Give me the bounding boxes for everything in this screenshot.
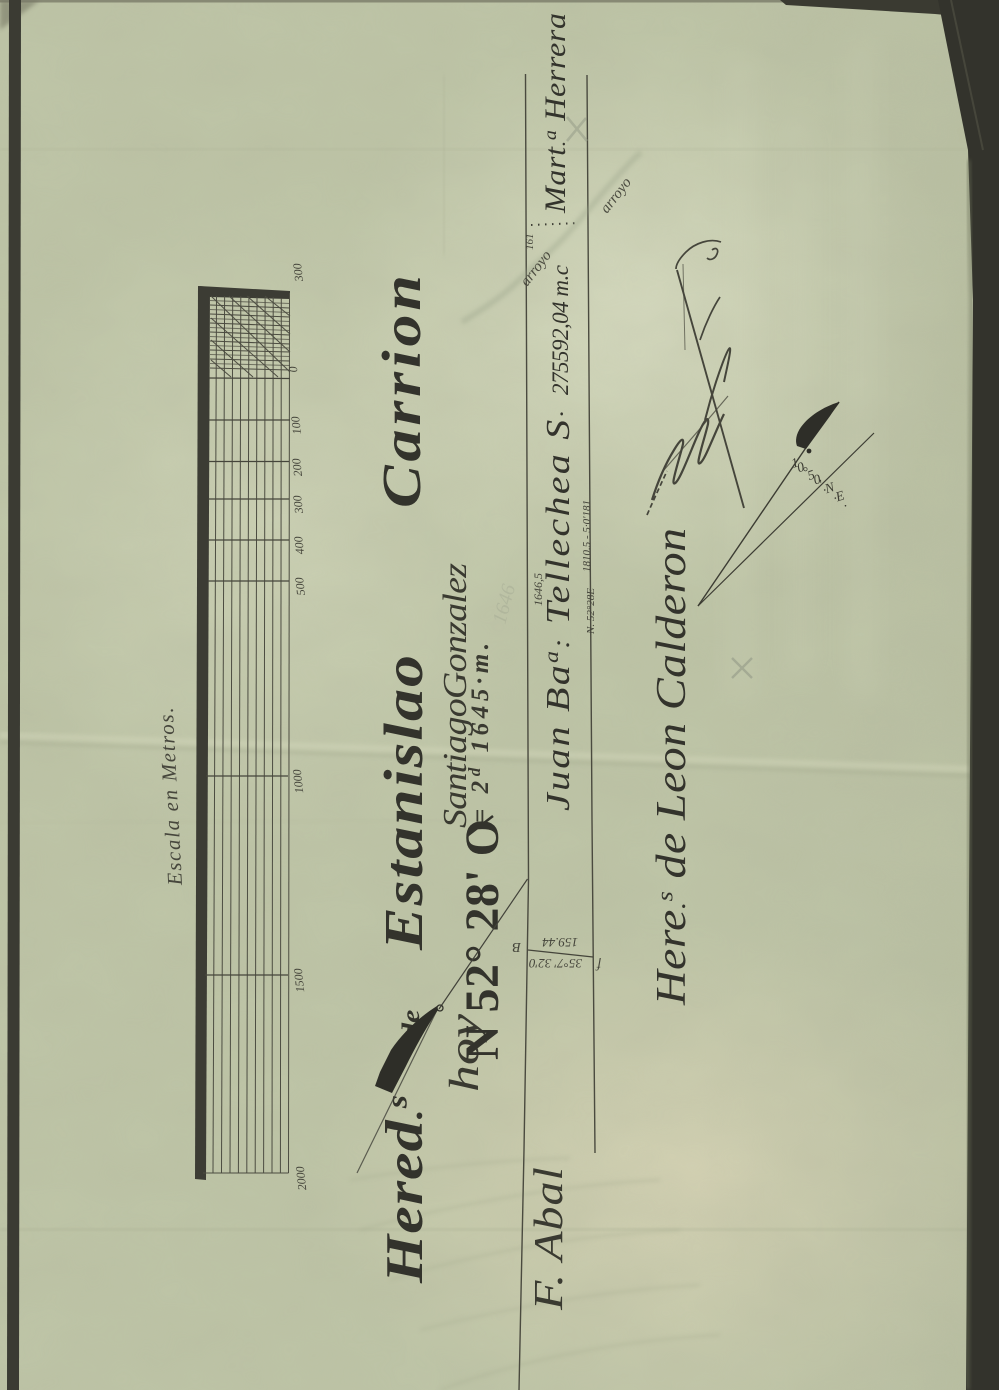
svg-text:F. Abal: F. Abal xyxy=(525,1166,571,1311)
svg-text:161: 161 xyxy=(524,234,536,251)
svg-text:300: 300 xyxy=(290,263,306,283)
svg-text:1646,5: 1646,5 xyxy=(531,573,545,606)
svg-text:Juan Baa: Tellechea S·: Juan Baa: Tellechea S· xyxy=(539,411,576,811)
svg-text:1500: 1500 xyxy=(291,968,307,993)
svg-text:Carrion: Carrion xyxy=(371,275,432,508)
svg-text:B: B xyxy=(512,939,521,954)
svg-text:159.44: 159.44 xyxy=(542,935,578,950)
svg-text:1000: 1000 xyxy=(290,769,306,794)
svg-text:1810.5 - 5·0'181: 1810.5 - 5·0'181 xyxy=(581,500,593,572)
svg-text:35°7' 32'0: 35°7' 32'0 xyxy=(528,956,583,971)
svg-text:500: 500 xyxy=(292,577,308,596)
svg-text:N. 52°28E: N. 52°28E xyxy=(585,588,597,635)
svg-text:Hered.s: Hered.s xyxy=(374,1095,434,1284)
svg-text:200: 200 xyxy=(289,458,305,477)
svg-text:Here.s de Leon Calderon: Here.s de Leon Calderon xyxy=(648,528,695,1006)
svg-text:N 52° 28' O: N 52° 28' O xyxy=(456,819,509,1060)
svg-text:Mart.a Herrera: Mart.a Herrera xyxy=(539,13,572,214)
svg-text:400: 400 xyxy=(291,536,307,555)
svg-text:2000: 2000 xyxy=(293,1166,309,1191)
svg-text:300: 300 xyxy=(290,495,306,515)
svg-text:275592,04 m.c: 275592,04 m.c xyxy=(548,265,573,395)
svg-text:100: 100 xyxy=(288,416,304,435)
